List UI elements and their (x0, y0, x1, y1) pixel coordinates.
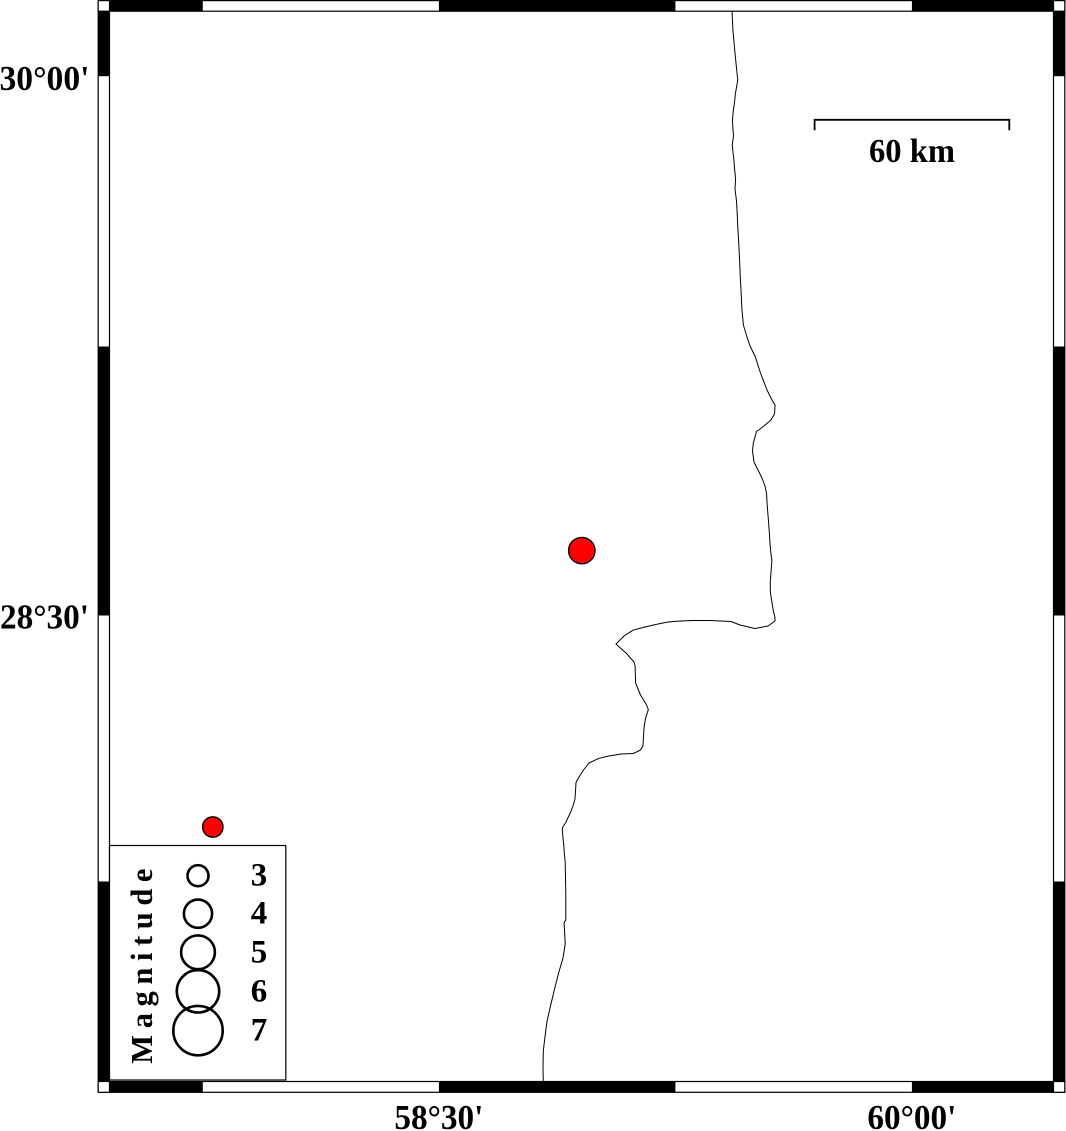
svg-text:4: 4 (251, 896, 268, 932)
svg-text:5: 5 (251, 934, 268, 970)
svg-text:7: 7 (251, 1013, 268, 1049)
svg-text:58°30': 58°30' (394, 1098, 483, 1131)
svg-text:6: 6 (251, 973, 268, 1009)
svg-text:Magnitude: Magnitude (125, 862, 159, 1064)
svg-text:60 km: 60 km (869, 133, 955, 170)
svg-text:3: 3 (251, 858, 268, 894)
svg-text:30°00': 30°00' (0, 59, 90, 98)
svg-text:60°00': 60°00' (867, 1098, 956, 1131)
svg-text:28°30': 28°30' (0, 598, 89, 637)
